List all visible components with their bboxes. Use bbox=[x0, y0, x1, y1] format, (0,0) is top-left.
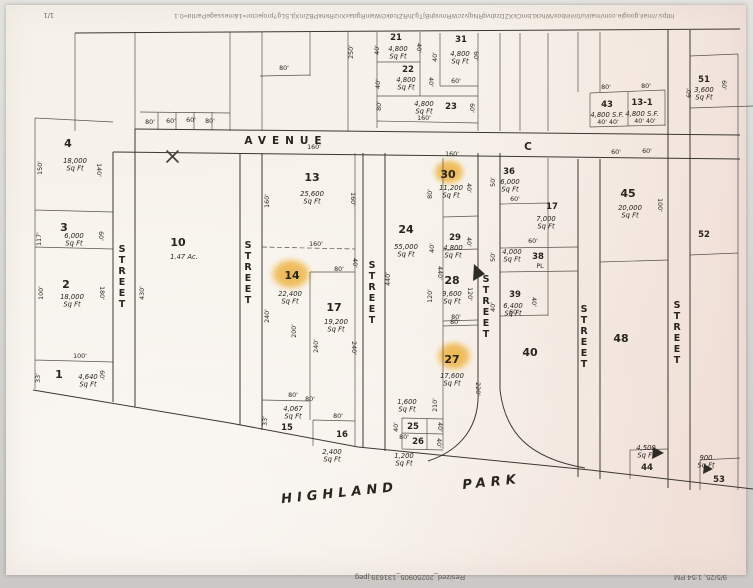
lot-1-dim-100: 100' bbox=[73, 353, 87, 360]
lot-29-dim-right: 40' bbox=[465, 237, 472, 247]
street-label-1: STREET bbox=[118, 244, 126, 310]
map-labels: 418,000Sq Ft150'140'36,000Sq Ft117'60'21… bbox=[35, 33, 727, 507]
lot-13-1-dim-bottom: 40' 40' bbox=[634, 118, 656, 125]
street-label-4: STREET bbox=[482, 274, 490, 340]
lot-22-area: 4,800Sq Ft bbox=[396, 76, 415, 92]
lot-4-number: 4 bbox=[64, 137, 72, 150]
lot-30-area: 11,200Sq Ft bbox=[439, 184, 463, 200]
pl-label: PL bbox=[536, 263, 544, 270]
lot-10-area: 1.47 Ac. bbox=[170, 253, 198, 261]
lot-22-number: 22 bbox=[402, 65, 414, 75]
lot-25-number: 25 bbox=[407, 422, 419, 432]
lot-53-number: 53 bbox=[713, 475, 725, 485]
lot-14-dim-80: 80' bbox=[334, 266, 344, 273]
lot-31-area: 4,800Sq Ft bbox=[450, 50, 469, 66]
lot-27-number: 27 bbox=[444, 353, 459, 366]
lot-30-dim-left: 80' bbox=[427, 189, 434, 199]
lot-36-area: 6,000Sq Ft bbox=[500, 178, 519, 194]
lot-13-number: 13 bbox=[304, 171, 319, 184]
lot-31-dim-left: 40' bbox=[432, 52, 439, 62]
lot-43-dim-top: 80' bbox=[601, 84, 611, 91]
lot-1-number: 1 bbox=[55, 368, 63, 381]
lot-44-area: 4,500Sq Ft bbox=[636, 444, 655, 460]
lot-51-area: 3,600Sq Ft bbox=[694, 86, 713, 102]
lot-48-number: 48 bbox=[613, 332, 628, 345]
lot-24-dim-right: 440' bbox=[436, 266, 443, 280]
lot-25-dim-left: 40' bbox=[393, 422, 400, 432]
lot-36-number: 36 bbox=[503, 167, 515, 177]
lot-26-number: 26 bbox=[412, 437, 424, 447]
lot-39-dim-left: 40' bbox=[490, 302, 497, 312]
park-name-label: HIGHLAND bbox=[281, 480, 399, 507]
avenue-label: AVENUE bbox=[244, 135, 327, 147]
lot-15-dim-80: 80' bbox=[288, 392, 298, 399]
lot-51-dim-left: 60' bbox=[686, 88, 693, 98]
lot-14-number: 14 bbox=[284, 269, 300, 282]
lot-10-dim-left: 430' bbox=[139, 286, 146, 300]
lot-27-area: 17,600Sq Ft bbox=[440, 372, 464, 388]
lot-29-number: 29 bbox=[449, 233, 461, 243]
lot-13-dim-bottom: 160' bbox=[309, 241, 323, 248]
lot-16-area: 2,400Sq Ft bbox=[322, 448, 341, 464]
lot-24-area: 55,000Sq Ft bbox=[394, 243, 418, 259]
lot-23-dim-bottom: 160' bbox=[417, 115, 431, 122]
lot-38-area: 4,000Sq Ft bbox=[502, 248, 521, 264]
lot-36-dim-left: 50' bbox=[490, 177, 497, 187]
lot-27-dim-top: 80' bbox=[450, 319, 460, 326]
lot-4-area: 18,000Sq Ft bbox=[63, 157, 87, 173]
lot-29-area: 4,800Sq Ft bbox=[443, 244, 462, 260]
lot-13-dim-left: 160' bbox=[264, 194, 271, 208]
lot-13-area: 25,600Sq Ft bbox=[300, 190, 324, 206]
lot-3-dim-right: 60' bbox=[97, 231, 104, 241]
lot-15-area: 4,067Sq Ft bbox=[283, 405, 303, 421]
lot-30-dim-top: 160' bbox=[445, 151, 459, 158]
lot-26-dim-right: 40' bbox=[435, 438, 442, 448]
lot-2-dim-right: 180' bbox=[98, 286, 105, 300]
lot-30-number: 30 bbox=[440, 168, 456, 181]
lot-16-dim-80: 80' bbox=[333, 413, 343, 420]
lot-28-dim-right: 120' bbox=[466, 287, 473, 301]
lot-2-area: 18,000Sq Ft bbox=[60, 293, 84, 309]
lot-16-number: 16 bbox=[336, 430, 348, 440]
lot-53-area: 900Sq Ft bbox=[697, 454, 715, 470]
lot-31-dim-right: 60' bbox=[472, 51, 479, 61]
lot-13-dim-right: 160' bbox=[349, 192, 356, 206]
lot-3-dim-left: 117' bbox=[36, 232, 43, 246]
avenue-tick-1: 80' bbox=[145, 119, 155, 126]
lot-1-area: 4,640Sq Ft bbox=[78, 373, 97, 389]
lot-28-dim-left: 120' bbox=[427, 289, 434, 303]
street-label-6: STREET bbox=[673, 300, 681, 366]
lot-45-dim-top-1: 60' bbox=[611, 149, 621, 156]
lot-36-dim-bottom: 60' bbox=[510, 196, 520, 203]
lot-38-number: 38 bbox=[532, 252, 544, 262]
street-label-3: STREET bbox=[368, 260, 376, 326]
lot-39-dim-bottom: 60' bbox=[509, 309, 519, 316]
lot-14-area: 22,400Sq Ft bbox=[278, 290, 302, 306]
lot-43-area: 4,800 S.F. bbox=[590, 111, 623, 119]
lot-4-dim-right: 140' bbox=[95, 163, 102, 177]
lot-17-center-area: 19,200Sq Ft bbox=[324, 318, 348, 334]
lot-22-dim-left: 40' bbox=[375, 79, 382, 89]
park-label: PARK bbox=[462, 472, 522, 493]
lot-43-number: 43 bbox=[601, 100, 613, 110]
lot-28-area: 9,600Sq Ft bbox=[442, 290, 461, 306]
lot-14-dim-left: 240' bbox=[264, 309, 271, 323]
lot-10-number: 10 bbox=[170, 236, 186, 249]
lot-23-dim-left: 80' bbox=[376, 101, 383, 111]
lot-51-dim-right: 60' bbox=[720, 80, 727, 90]
top-block-dim: 80' bbox=[279, 65, 289, 72]
lot-17-center-dim-240r: 240' bbox=[350, 341, 357, 355]
lot-15-number: 15 bbox=[281, 423, 293, 433]
street-label-2: STREET bbox=[244, 240, 252, 306]
lot-13-1-number: 13-1 bbox=[631, 98, 652, 108]
lot-23-number: 23 bbox=[445, 102, 457, 112]
lot-24-dim-left: 440' bbox=[385, 272, 392, 286]
lot-25-area: 1,600Sq Ft bbox=[397, 398, 416, 414]
lot-17-right-dim: 60' bbox=[528, 238, 538, 245]
lot-30-dim-right: 40' bbox=[465, 183, 472, 193]
lot-26-area: 1,200Sq Ft bbox=[394, 452, 413, 468]
lot-1-dim-60: 60' bbox=[98, 370, 105, 380]
lot-25-dim-right: 40' bbox=[436, 422, 443, 432]
lot-45-area: 20,000Sq Ft bbox=[618, 204, 642, 220]
photo-of-printed-page: https://mail.google.com/mail/u/0/#inbox/… bbox=[0, 0, 753, 588]
lot-23-dim-right: 60' bbox=[468, 103, 475, 113]
lot-31-number: 31 bbox=[455, 35, 467, 45]
lot-2-dim-left: 100' bbox=[38, 286, 45, 300]
lot-27-dim-right: 220' bbox=[474, 382, 481, 396]
avenue-tick-2: 60' bbox=[166, 118, 176, 125]
lot-15-dim-33: 33' bbox=[262, 416, 269, 426]
footer-timestamp: 9/5/25, 1:54 PM bbox=[597, 573, 727, 582]
avenue-tick-3: 60' bbox=[186, 117, 196, 124]
lot-45-number: 45 bbox=[620, 187, 635, 200]
lot-51-number: 51 bbox=[698, 75, 710, 85]
lot-13-1-dim-top: 80' bbox=[641, 83, 651, 90]
lot-2-number: 2 bbox=[62, 278, 70, 291]
lot-38-dim-left: 50' bbox=[490, 252, 497, 262]
lot-24-number: 24 bbox=[398, 223, 414, 236]
lot-1-dim-33: 33' bbox=[35, 373, 42, 383]
lot-43-dim-bottom: 40' 40' bbox=[597, 119, 619, 126]
lot-23-area: 4,800Sq Ft bbox=[414, 100, 433, 116]
plat-map: 418,000Sq Ft150'140'36,000Sq Ft117'60'21… bbox=[0, 0, 753, 588]
lot-14-dim-40: 40' bbox=[351, 258, 358, 268]
lot-52-number: 52 bbox=[698, 230, 710, 240]
lot-21-number: 21 bbox=[390, 33, 402, 43]
footer-filename: Resized_20250905_131639.jpeg bbox=[285, 573, 535, 582]
lot-13-1-area: 4,800 S.F. bbox=[625, 110, 658, 118]
lot-29-dim-left: 40' bbox=[429, 243, 436, 253]
lot-4-dim-left: 150' bbox=[37, 161, 44, 175]
avenue-letter: C bbox=[524, 141, 538, 153]
lot-28-number: 28 bbox=[444, 274, 459, 287]
lot-3-area: 6,000Sq Ft bbox=[64, 232, 83, 248]
top-block-dim-250: 250' bbox=[348, 45, 355, 59]
lot-44-number: 44 bbox=[641, 463, 653, 473]
lot-39-number: 39 bbox=[509, 290, 521, 300]
lot-45-dim-top-2: 60' bbox=[642, 148, 652, 155]
lot-17-center-dim-200: 200' bbox=[291, 324, 298, 338]
lot-26-dim-80: 80' bbox=[399, 434, 409, 441]
lot-21-dim-right: 40' bbox=[415, 43, 422, 53]
lot-17-right-number: 17 bbox=[546, 202, 558, 212]
lot-21-dim-left: 40' bbox=[374, 45, 381, 55]
lot-21-area: 4,800Sq Ft bbox=[388, 45, 407, 61]
lot-45-dim-right: 100' bbox=[656, 198, 663, 212]
lot-17-center-dim-80: 80' bbox=[305, 396, 315, 403]
lot-17-center-number: 17 bbox=[326, 301, 341, 314]
avenue-tick-4: 80' bbox=[205, 118, 215, 125]
lot-31-dim-bottom: 60' bbox=[451, 78, 461, 85]
lot-17-right-area: 7,000Sq Ft bbox=[536, 215, 555, 231]
lot-22-dim-right: 40' bbox=[427, 77, 434, 87]
street-label-5: STREET bbox=[580, 304, 588, 370]
lot-17-center-dim-240l: 240' bbox=[313, 339, 320, 353]
lot-39-dim-right: 40' bbox=[530, 297, 537, 307]
lot-27-dim-left: 210' bbox=[432, 398, 439, 412]
lot-40-number: 40 bbox=[522, 346, 538, 359]
